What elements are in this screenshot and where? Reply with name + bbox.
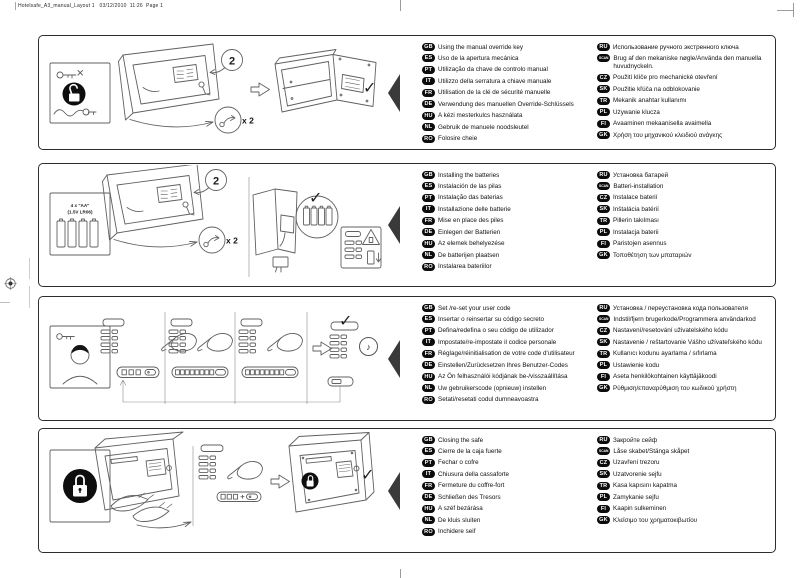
crop-mark-left-2 (29, 286, 30, 308)
lang-row: TRPillerin takılması (597, 217, 771, 225)
lang-row: SCANBrug af den mekaniske nøgle/Använda … (597, 54, 771, 70)
language-text: Pillerin takılması (613, 217, 659, 225)
language-text: Utilisation de la clé de sécurité manuel… (438, 89, 550, 97)
language-badge: RU (597, 304, 610, 312)
language-badge: FI (597, 373, 610, 381)
language-badge: SK (597, 205, 610, 213)
unlocked-padlock-icon (63, 83, 86, 106)
language-text: Установка батарей (613, 171, 668, 179)
lang-row: GKΚλείσιμο του χρηματοκιβωτίου (597, 516, 771, 524)
language-badge: GK (597, 251, 610, 259)
language-list-left: GBUsing the manual override keyESUso de … (422, 43, 596, 146)
language-badge: GK (597, 384, 610, 392)
language-text: Using the manual override key (438, 43, 523, 51)
lang-row: ESUso de la apertura mecánica (422, 54, 596, 62)
language-badge: NL (422, 516, 435, 524)
language-text: Az elemek behelyezése (438, 240, 505, 248)
section-flag-marker (388, 472, 400, 510)
lang-row: NLDe batterijen plaatsen (422, 251, 596, 259)
language-text: Uso de la apertura mecánica (438, 54, 519, 62)
language-text: Χρήση του μηχανικού κλειδιού ανάγκης (613, 131, 722, 139)
lang-row: ESInsertar o reinsertar su código secret… (422, 315, 596, 323)
lang-row: GKΧρήση του μηχανικού κλειδιού ανάγκης (597, 131, 771, 139)
language-badge: SK (597, 85, 610, 93)
language-text: Ρύθμιση/επαναρύθμιση του κωδικού χρήστη (613, 384, 737, 392)
lang-row: RUИспользование ручного экстренного ключ… (597, 43, 771, 51)
language-badge: HU (422, 240, 435, 248)
batteries-illustration: 4 x "AA" (1.5V LR06) (45, 165, 385, 285)
keypad-step-1 (101, 319, 197, 378)
lang-row: GBInstalling the batteries (422, 171, 596, 179)
lang-row: GBUsing the manual override key (422, 43, 596, 51)
arrow-right-icon (271, 475, 290, 488)
lang-row: SKUzatvorenie sejfu (597, 470, 771, 478)
language-badge: DE (422, 361, 435, 369)
lang-row: RUЗакройте сейф (597, 436, 771, 444)
language-badge: ES (422, 54, 435, 62)
language-text: Używanie klucza (613, 108, 660, 116)
lang-row: SKNastavenie / reštartovanie Vášho užíva… (597, 338, 771, 346)
closing-safe-illustration (45, 430, 385, 551)
battery-spec-line2: (1.5V LR06) (67, 210, 92, 215)
crop-mark-left-1 (29, 258, 30, 279)
language-badge: ES (422, 447, 435, 455)
language-text: Verwendung des manuellen Override-Schlüs… (438, 100, 574, 108)
language-list-left: GBInstalling the batteriesESInstalación … (422, 171, 596, 274)
section-flag-marker (388, 206, 400, 244)
section-using-manual-override-key: 2 x 2 ✓ GBUsing (38, 35, 776, 150)
language-badge: SK (597, 470, 610, 478)
lang-row: HUAz elemek behelyezése (422, 240, 596, 248)
language-text: Cierre de la caja fuerte (438, 447, 502, 455)
section-flag-marker (388, 340, 400, 378)
language-text: Установка / переустановка кода пользоват… (613, 304, 748, 312)
language-text: De batterijen plaatsen (438, 251, 499, 259)
lang-row: FRFermeture du coffre-fort (422, 482, 596, 490)
language-text: Folosire cheie (438, 135, 477, 143)
language-badge: RO (422, 135, 435, 143)
language-text: Kaapin sulkeminen (613, 505, 666, 513)
lang-row: ITChiusura della cassaforte (422, 470, 596, 478)
language-badge: TR (597, 97, 610, 105)
language-badge: FR (422, 482, 435, 490)
beep-sound-icon: ♪ (359, 337, 378, 356)
lang-row: DESchließen des Tresors (422, 493, 596, 501)
lang-row: ESInstalación de las pilas (422, 182, 596, 190)
lang-row: FIParistojen asennus (597, 240, 771, 248)
language-badge: GK (597, 516, 610, 524)
language-badge: PT (422, 194, 435, 202)
language-badge: RU (597, 436, 610, 444)
language-badge: CZ (597, 327, 610, 335)
lang-row: PLUżywanie klucza (597, 108, 771, 116)
language-text: Kasa kapısını kapatma (613, 482, 677, 490)
language-badge: RO (422, 263, 435, 271)
lang-row: DEEinstellen/Zurücksetzen Ihres Benutzer… (422, 361, 596, 369)
language-badge: FR (422, 217, 435, 225)
x2-label: x 2 (242, 116, 254, 126)
language-list-right: RUЗакройте сейфSCANLåse skabet/Stänga sk… (597, 436, 771, 528)
checkmark-icon: ✓ (361, 467, 374, 483)
language-badge: NL (422, 251, 435, 259)
language-text: Mise en place des piles (438, 217, 503, 225)
lang-row: TRKullanıcı kodunu ayarlama / sıfırlama (597, 350, 771, 358)
language-text: Installing the batteries (438, 171, 499, 179)
language-text: Uzavření trezoru (613, 459, 660, 467)
lang-row: SCANBatteri-installation (597, 182, 771, 190)
language-badge: CZ (597, 194, 610, 202)
lang-row: PTFechar o cofre (422, 459, 596, 467)
lang-row: NLDe kluis sluiten (422, 516, 596, 524)
lang-row: FRUtilisation de la clé de sécurité manu… (422, 89, 596, 97)
lang-row: HUAz Ön felhasználói kódjának be-/vissza… (422, 373, 596, 381)
section-closing-safe: ✓ GBClosing the safeESCierre de la caja … (38, 428, 776, 553)
language-badge: HU (422, 112, 435, 120)
language-text: Instalarea bateriilor (438, 263, 492, 271)
language-badge: FI (597, 120, 610, 128)
language-text: De kluis sluiten (438, 516, 480, 524)
language-badge: RU (597, 171, 610, 179)
lang-row: SCANIndstil/fjern brugerkode/Programmera… (597, 315, 771, 323)
lang-row: HUA széf bezárása (422, 505, 596, 513)
language-text: Réglage/réinitialisation de votre code d… (438, 350, 575, 358)
lang-row: RUУстановка батарей (597, 171, 771, 179)
lang-row: DEVerwendung des manuellen Override-Schl… (422, 100, 596, 108)
lang-row: PTUtilização da chave de controlo manual (422, 66, 596, 74)
language-text: Uzatvorenie sejfu (613, 470, 662, 478)
language-badge: NL (422, 123, 435, 131)
override-key-cord-icon (54, 109, 96, 116)
key-icon (57, 71, 83, 79)
language-badge: GK (597, 131, 610, 139)
lock-keypad-sequence (199, 445, 263, 502)
language-text: Set /re-set your user code (438, 304, 510, 312)
language-text: Instalação das baterias (438, 194, 503, 202)
language-text: Τοποθέτηση των μπαταριών (613, 251, 692, 259)
language-badge: RO (422, 396, 435, 404)
language-badge: PT (422, 66, 435, 74)
language-text: Instalación de las pilas (438, 182, 501, 190)
language-text: Installazione delle batterie (438, 205, 511, 213)
hand-icon (162, 333, 197, 351)
language-badge: FI (597, 505, 610, 513)
language-text: Zamykanie sejfu (613, 493, 659, 501)
language-text: Einstellen/Zurücksetzen Ihres Benutzer-C… (438, 361, 568, 369)
crop-mark-top (400, 0, 401, 11)
language-text: A kézi mesterkulcs használata (438, 112, 522, 120)
lang-row: FIAseta henkilökohtainen käyttäjäkoodi (597, 373, 771, 381)
language-text: Avaaminen mekaanisella avaimella (613, 120, 711, 128)
lang-row: GKΡύθμιση/επαναρύθμιση του κωδικού χρήστ… (597, 384, 771, 392)
language-badge: FI (597, 240, 610, 248)
user-box (50, 326, 110, 388)
lang-row: SKPoužitie kľúča na odblokovanie (597, 85, 771, 93)
open-safe-with-key-illustration (119, 44, 220, 127)
language-text: A széf bezárása (438, 505, 483, 513)
language-badge: IT (422, 470, 435, 478)
language-badge: CZ (597, 459, 610, 467)
language-text: Setati/resetati codul dumneavoastra (438, 396, 538, 404)
lang-row: ROSetati/resetati codul dumneavoastra (422, 396, 596, 404)
language-text: Použití klíče pro mechanické otevření (613, 74, 718, 82)
language-list-right: RUУстановка / переустановка кода пользов… (597, 304, 771, 396)
language-list-right: RUУстановка батарейSCANBatteri-installat… (597, 171, 771, 263)
language-text: Utilização da chave de controlo manual (438, 66, 548, 74)
code-confirmed-display (328, 322, 358, 386)
language-badge: SCAN (597, 54, 610, 62)
language-badge: DE (422, 228, 435, 236)
language-text: Az Ön felhasználói kódjának be-/visszaál… (438, 373, 568, 381)
lang-row: GBClosing the safe (422, 436, 596, 444)
lang-row: PLInstalacja baterii (597, 228, 771, 236)
section-set-user-code: ✓ ♪ GBSet /re-set your user codeESInsert… (38, 296, 776, 421)
language-badge: PT (422, 327, 435, 335)
language-text: Schließen des Tresors (438, 493, 501, 501)
language-badge: PT (422, 459, 435, 467)
section-flag-marker (388, 74, 400, 112)
lang-row: DEEinlegen der Batterien (422, 228, 596, 236)
lang-row: RUУстановка / переустановка кода пользов… (597, 304, 771, 312)
lang-row: PTDefina/redefina o seu código de utiliz… (422, 327, 596, 335)
language-badge: PL (597, 108, 610, 116)
registration-target-icon (4, 277, 17, 290)
language-text: Indstil/fjern brugerkode/Programmera anv… (613, 315, 755, 323)
lang-row: GKΤοποθέτηση των μπαταριών (597, 251, 771, 259)
language-text: Nastavení/resetování uživatelského kódu (613, 327, 728, 335)
crop-mark-top-right-h (777, 10, 793, 11)
lang-row: PLZamykanie sejfu (597, 493, 771, 501)
battery-warning-panel (341, 227, 381, 268)
locked-badge-icon (302, 473, 319, 490)
language-badge: SCAN (597, 447, 610, 455)
language-text: Ustawienie kodu (613, 361, 659, 369)
language-text: Inštalácia batérií (613, 205, 659, 213)
lang-row: SCANLåse skabet/Stänga skåpet (597, 447, 771, 455)
language-text: Nastavenie / reštartovanie Vášho užívate… (613, 338, 762, 346)
lang-row: GBSet /re-set your user code (422, 304, 596, 312)
language-badge: ES (422, 182, 435, 190)
language-badge: GB (422, 304, 435, 312)
language-text: Использование ручного экстренного ключа (613, 43, 739, 51)
language-badge: SCAN (597, 315, 610, 323)
lang-row: ESCierre de la caja fuerte (422, 447, 596, 455)
language-text: Paristojen asennus (613, 240, 667, 248)
safe-door-closing (95, 432, 191, 528)
language-badge: SK (597, 338, 610, 346)
door-back-battery-compartment (253, 189, 297, 272)
lang-row: SKInštalácia batérií (597, 205, 771, 213)
language-badge: TR (597, 217, 610, 225)
language-text: Uw gebruikerscode (opnieuw) instellen (438, 384, 546, 392)
language-badge: PL (597, 493, 610, 501)
language-badge: IT (422, 205, 435, 213)
language-badge: FR (422, 89, 435, 97)
language-text: Utilizzo della serratura a chiave manual… (438, 77, 551, 85)
lang-row: ITImpostate/re-impostate il codice perso… (422, 338, 596, 346)
language-text: Instalace baterií (613, 194, 657, 202)
lang-row: ROInstalarea bateriilor (422, 263, 596, 271)
lang-row: PLUstawienie kodu (597, 361, 771, 369)
language-text: Instalacja baterii (613, 228, 659, 236)
language-badge: RU (597, 43, 610, 51)
lang-row: PTInstalação das baterias (422, 194, 596, 202)
language-badge: NL (422, 384, 435, 392)
checkmark-icon: ✓ (339, 313, 352, 329)
keypad-step-3 (239, 319, 303, 378)
language-badge: RO (422, 528, 435, 536)
language-list-left: GBSet /re-set your user codeESInsertar o… (422, 304, 596, 407)
section-installing-batteries: 4 x "AA" (1.5V LR06) (38, 163, 776, 287)
crop-mark-left-h (0, 302, 10, 303)
lang-row: FIKaapin sulkeminen (597, 505, 771, 513)
language-text: Einlegen der Batterien (438, 228, 500, 236)
hand-icon (198, 333, 233, 351)
language-badge: CZ (597, 74, 610, 82)
crop-mark-bottom (400, 569, 401, 578)
language-badge: IT (422, 338, 435, 346)
language-text: Insertar o reinsertar su código secreto (438, 315, 544, 323)
lang-row: CZInstalace baterií (597, 194, 771, 202)
lang-row: ITUtilizzo della serratura a chiave manu… (422, 77, 596, 85)
user-code-illustration (45, 298, 385, 419)
lang-row: ROFolosire cheie (422, 135, 596, 143)
keypad-step-2 (169, 319, 233, 378)
language-text: Inchidere seif (438, 528, 475, 536)
arrow-right-icon (313, 342, 332, 355)
open-safe-door-illustration (275, 50, 376, 113)
language-badge: HU (422, 373, 435, 381)
language-text: Låse skabet/Stänga skåpet (613, 447, 689, 455)
arrow-right-icon (251, 83, 270, 96)
manual-page: Hotelsafe_A3_manual_Layout 1 03/12/2010 … (0, 0, 802, 578)
lang-row: NLUw gebruikerscode (opnieuw) instellen (422, 384, 596, 392)
language-text: Brug af den mekaniske nøgle/Använda den … (613, 54, 771, 70)
language-text: Κλείσιμο του χρηματοκιβωτίου (613, 516, 697, 524)
user-icon (63, 345, 97, 384)
lang-row: TRMekanik anahtar kullanımı (597, 97, 771, 105)
language-text: Fermeture du coffre-fort (438, 482, 504, 490)
language-text: Closing the safe (438, 436, 483, 444)
language-text: Batteri-installation (613, 182, 663, 190)
language-badge: FR (422, 350, 435, 358)
language-list-right: RUИспользование ручного экстренного ключ… (597, 43, 771, 142)
language-badge: TR (597, 482, 610, 490)
language-badge: IT (422, 77, 435, 85)
crop-mark-top-right-v (793, 3, 794, 17)
language-badge: GB (422, 436, 435, 444)
lang-row: CZPoužití klíče pro mechanické otevření (597, 74, 771, 82)
hand-icon (268, 333, 303, 351)
language-text: Fechar o cofre (438, 459, 479, 467)
language-list-left: GBClosing the safeESCierre de la caja fu… (422, 436, 596, 539)
language-badge: SCAN (597, 182, 610, 190)
lang-row: HUA kézi mesterkulcs használata (422, 112, 596, 120)
lang-row: CZNastavení/resetování uživatelského kód… (597, 327, 771, 335)
language-text: Použitie kľúča na odblokovanie (613, 85, 700, 93)
hand-icon (228, 461, 263, 479)
turn-twice-marker: x 2 (215, 107, 254, 133)
lang-row: ITInstallazione delle batterie (422, 205, 596, 213)
language-text: Chiusura della cassaforte (438, 470, 509, 478)
language-badge: DE (422, 100, 435, 108)
language-badge: GB (422, 171, 435, 179)
language-text: Impostate/re-impostate il codice persona… (438, 338, 556, 346)
language-badge: DE (422, 493, 435, 501)
override-key-illustration: 2 x 2 (45, 37, 385, 148)
language-badge: HU (422, 505, 435, 513)
language-text: Gebruik de manuele noodsleutel (438, 123, 529, 131)
lang-row: TRKasa kapısını kapatma (597, 482, 771, 490)
language-text: Aseta henkilökohtainen käyttäjäkoodi (613, 373, 717, 381)
checkmark-icon: ✓ (363, 80, 376, 96)
step-number: 2 (229, 56, 235, 68)
header-tick-mark (15, 2, 16, 10)
language-text: Kullanıcı kodunu ayarlama / sıfırlama (613, 350, 717, 358)
key-icon (57, 334, 75, 340)
language-text: Закройте сейф (613, 436, 657, 444)
lang-row: NLGebruik de manuele noodsleutel (422, 123, 596, 131)
language-badge: TR (597, 350, 610, 358)
locked-padlock-icon (63, 469, 97, 503)
language-badge: PL (597, 361, 610, 369)
print-header: Hotelsafe_A3_manual_Layout 1 03/12/2010 … (18, 3, 163, 9)
lang-row: FRRéglage/réinitialisation de votre code… (422, 350, 596, 358)
lang-row: CZUzavření trezoru (597, 459, 771, 467)
language-badge: GB (422, 43, 435, 51)
checkmark-icon: ✓ (309, 190, 322, 206)
language-text: Mekanik anahtar kullanımı (613, 97, 687, 105)
language-text: Defina/redefina o seu código de utilizad… (438, 327, 554, 335)
lang-row: ROInchidere seif (422, 528, 596, 536)
language-badge: PL (597, 228, 610, 236)
language-badge: ES (422, 315, 435, 323)
lang-row: FRMise en place des piles (422, 217, 596, 225)
lang-row: FIAvaaminen mekaanisella avaimella (597, 120, 771, 128)
battery-icons (57, 219, 98, 247)
battery-spec-line1: 4 x "AA" (71, 203, 90, 208)
